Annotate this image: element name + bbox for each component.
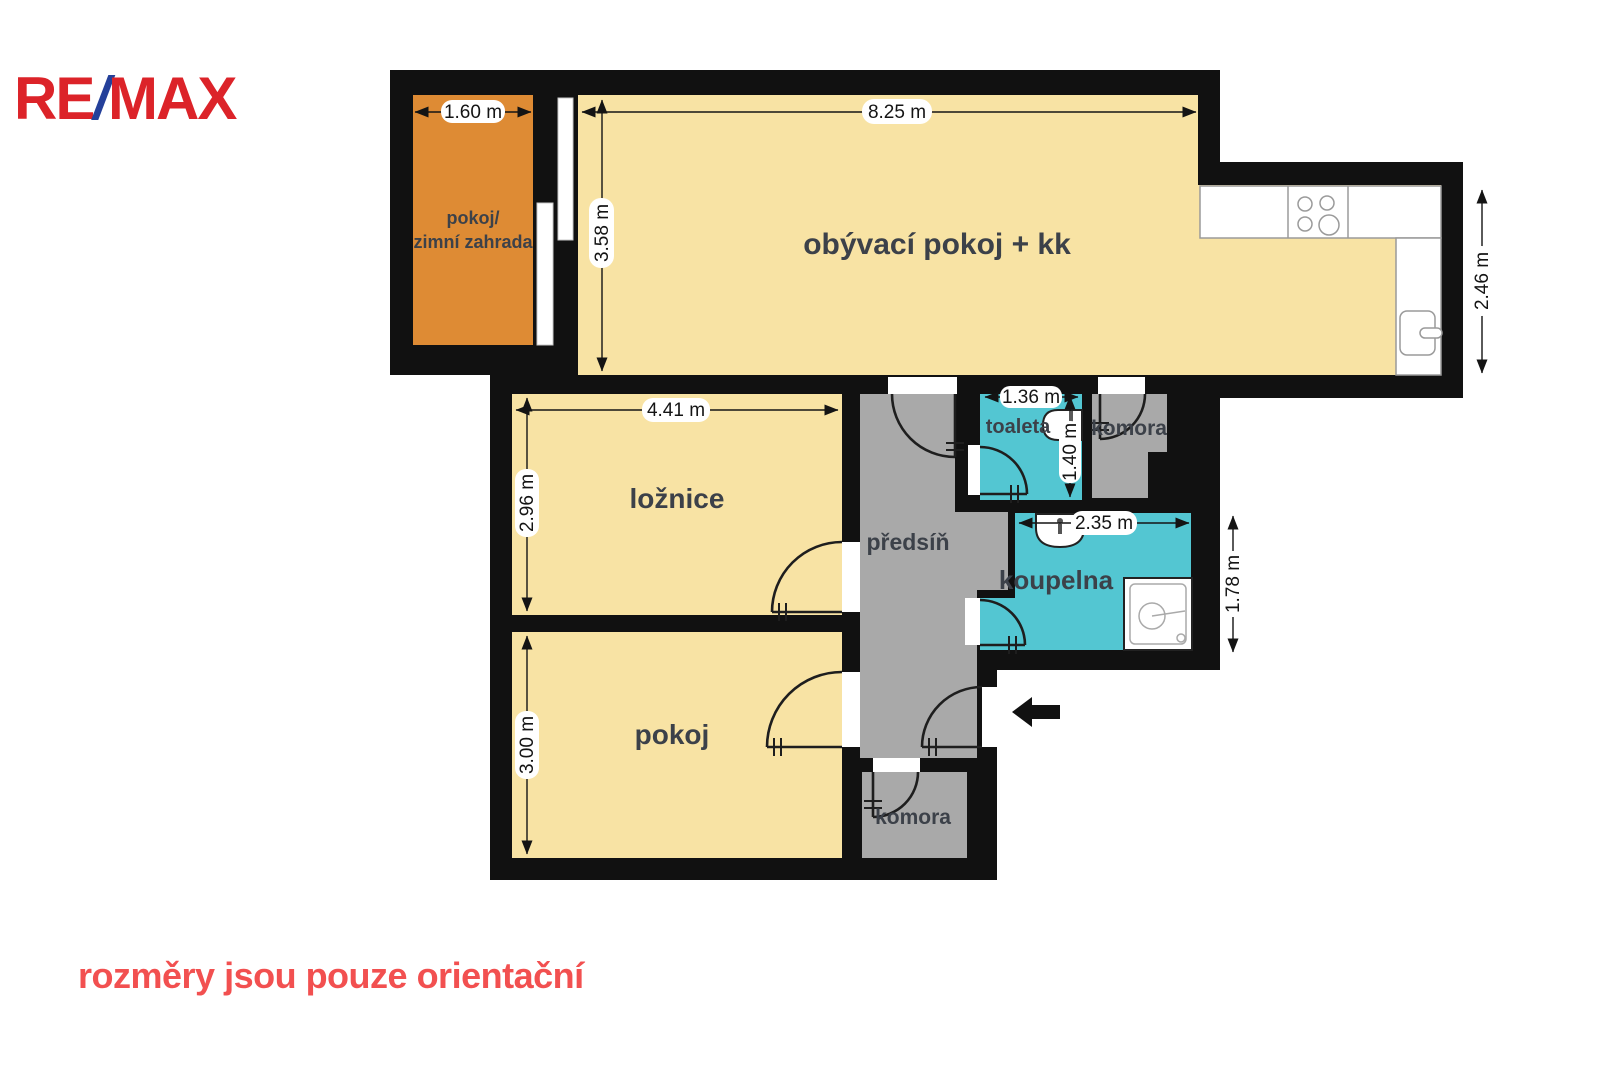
dim-toilet-depth: 1.40 m <box>1060 423 1081 481</box>
remax-logo: RE/MAX <box>14 65 237 132</box>
window-winter-garden-right <box>558 98 573 240</box>
kitchen-sink-icon <box>1400 311 1442 355</box>
label-toilet: toaleta <box>986 416 1051 438</box>
label-bathroom: koupelna <box>999 565 1114 595</box>
label-pantry-upper: komora <box>1091 417 1167 440</box>
dim-bedroom-width: 4.41 m <box>647 400 705 421</box>
label-winter-garden-line1: pokoj/ <box>447 208 500 228</box>
label-pokoj: pokoj <box>635 719 710 750</box>
dim-living-depth: 3.58 m <box>592 204 613 262</box>
door-opening-pantry-upper <box>1098 377 1145 394</box>
door-opening-living-hall <box>888 377 957 394</box>
label-pantry-lower: komora <box>875 806 951 829</box>
door-opening-toilet <box>968 445 980 495</box>
shower-icon <box>1124 578 1192 650</box>
door-opening-bedroom <box>842 542 860 612</box>
door-opening-bathroom <box>965 598 980 645</box>
floor-plan: 1.60 m 8.25 m 3.58 m 2.46 m 4.41 m 2.96 … <box>0 0 1600 1066</box>
disclaimer-text: rozměry jsou pouze orientační <box>78 955 585 996</box>
window-winter-garden-left <box>537 203 553 345</box>
dim-living-width: 8.25 m <box>868 102 926 123</box>
dim-toilet-width: 1.36 m <box>1002 387 1060 408</box>
door-opening-entry <box>982 687 997 747</box>
label-winter-garden-line2: zimní zahrada <box>413 232 533 252</box>
floor-plan-page: 1.60 m 8.25 m 3.58 m 2.46 m 4.41 m 2.96 … <box>0 0 1600 1066</box>
entry-arrow-icon <box>1012 697 1060 727</box>
door-opening-pokoj <box>842 672 860 747</box>
label-living-room: obývací pokoj + kk <box>803 228 1071 261</box>
dim-bedroom-depth: 2.96 m <box>517 474 538 532</box>
dim-kitchen-depth: 2.46 m <box>1472 252 1493 310</box>
dim-winter-garden-width: 1.60 m <box>444 102 502 123</box>
label-hallway: předsíň <box>866 529 949 555</box>
door-opening-pantry-lower <box>873 758 920 772</box>
dim-room-depth: 3.00 m <box>517 716 538 774</box>
label-bedroom: ložnice <box>630 483 725 514</box>
dim-bathroom-width: 2.35 m <box>1075 513 1133 534</box>
dim-bathroom-depth: 1.78 m <box>1223 555 1244 613</box>
